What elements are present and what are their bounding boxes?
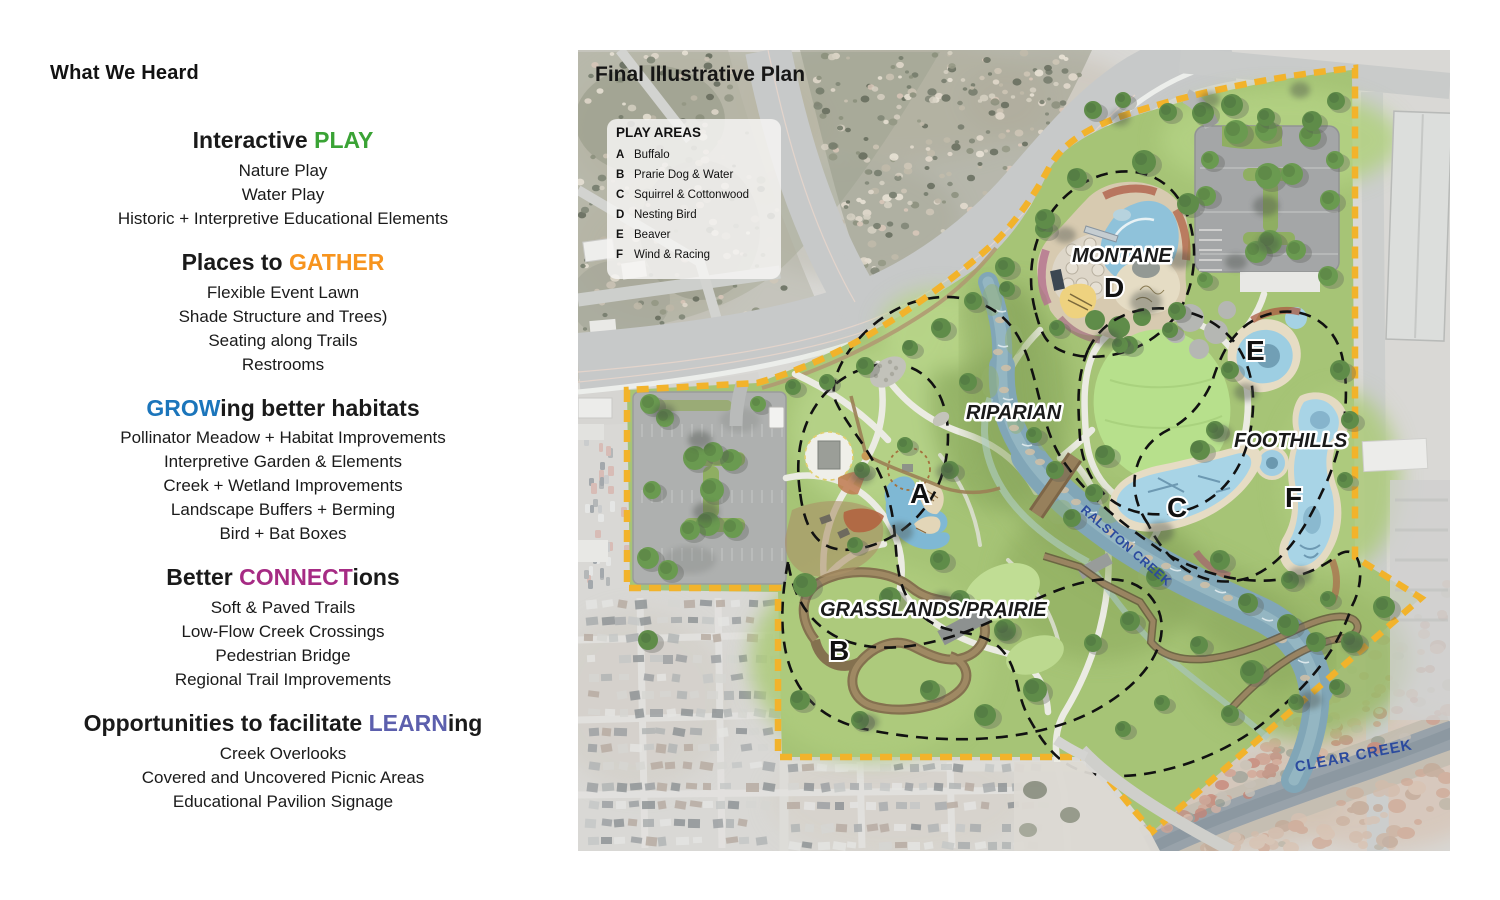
svg-text:Final Illustrative Plan: Final Illustrative Plan [595, 63, 805, 86]
svg-text:C: C [1167, 492, 1187, 523]
svg-text:C: C [616, 189, 624, 201]
svg-text:E: E [1246, 335, 1265, 366]
svg-text:A: A [910, 478, 930, 509]
svg-text:E: E [616, 229, 624, 241]
svg-text:F: F [1285, 482, 1302, 513]
svg-text:Prarie Dog & Water: Prarie Dog & Water [634, 169, 733, 181]
svg-text:Nesting Bird: Nesting Bird [634, 209, 697, 221]
svg-text:RIPARIAN: RIPARIAN [966, 402, 1062, 424]
svg-text:D: D [1104, 272, 1124, 303]
svg-text:Beaver: Beaver [634, 229, 671, 241]
svg-text:B: B [829, 635, 849, 666]
svg-text:A: A [616, 149, 624, 161]
svg-text:Buffalo: Buffalo [634, 149, 670, 161]
svg-text:F: F [616, 249, 623, 261]
svg-text:D: D [616, 209, 624, 221]
svg-text:FOOTHILLS: FOOTHILLS [1234, 430, 1348, 452]
svg-text:Wind & Racing: Wind & Racing [634, 249, 710, 261]
svg-text:GRASSLANDS/PRAIRIE: GRASSLANDS/PRAIRIE [820, 599, 1047, 621]
svg-text:Squirrel & Cottonwood: Squirrel & Cottonwood [634, 189, 749, 201]
svg-text:B: B [616, 169, 624, 181]
svg-text:MONTANE: MONTANE [1072, 245, 1172, 267]
svg-text:PLAY AREAS: PLAY AREAS [616, 125, 701, 140]
